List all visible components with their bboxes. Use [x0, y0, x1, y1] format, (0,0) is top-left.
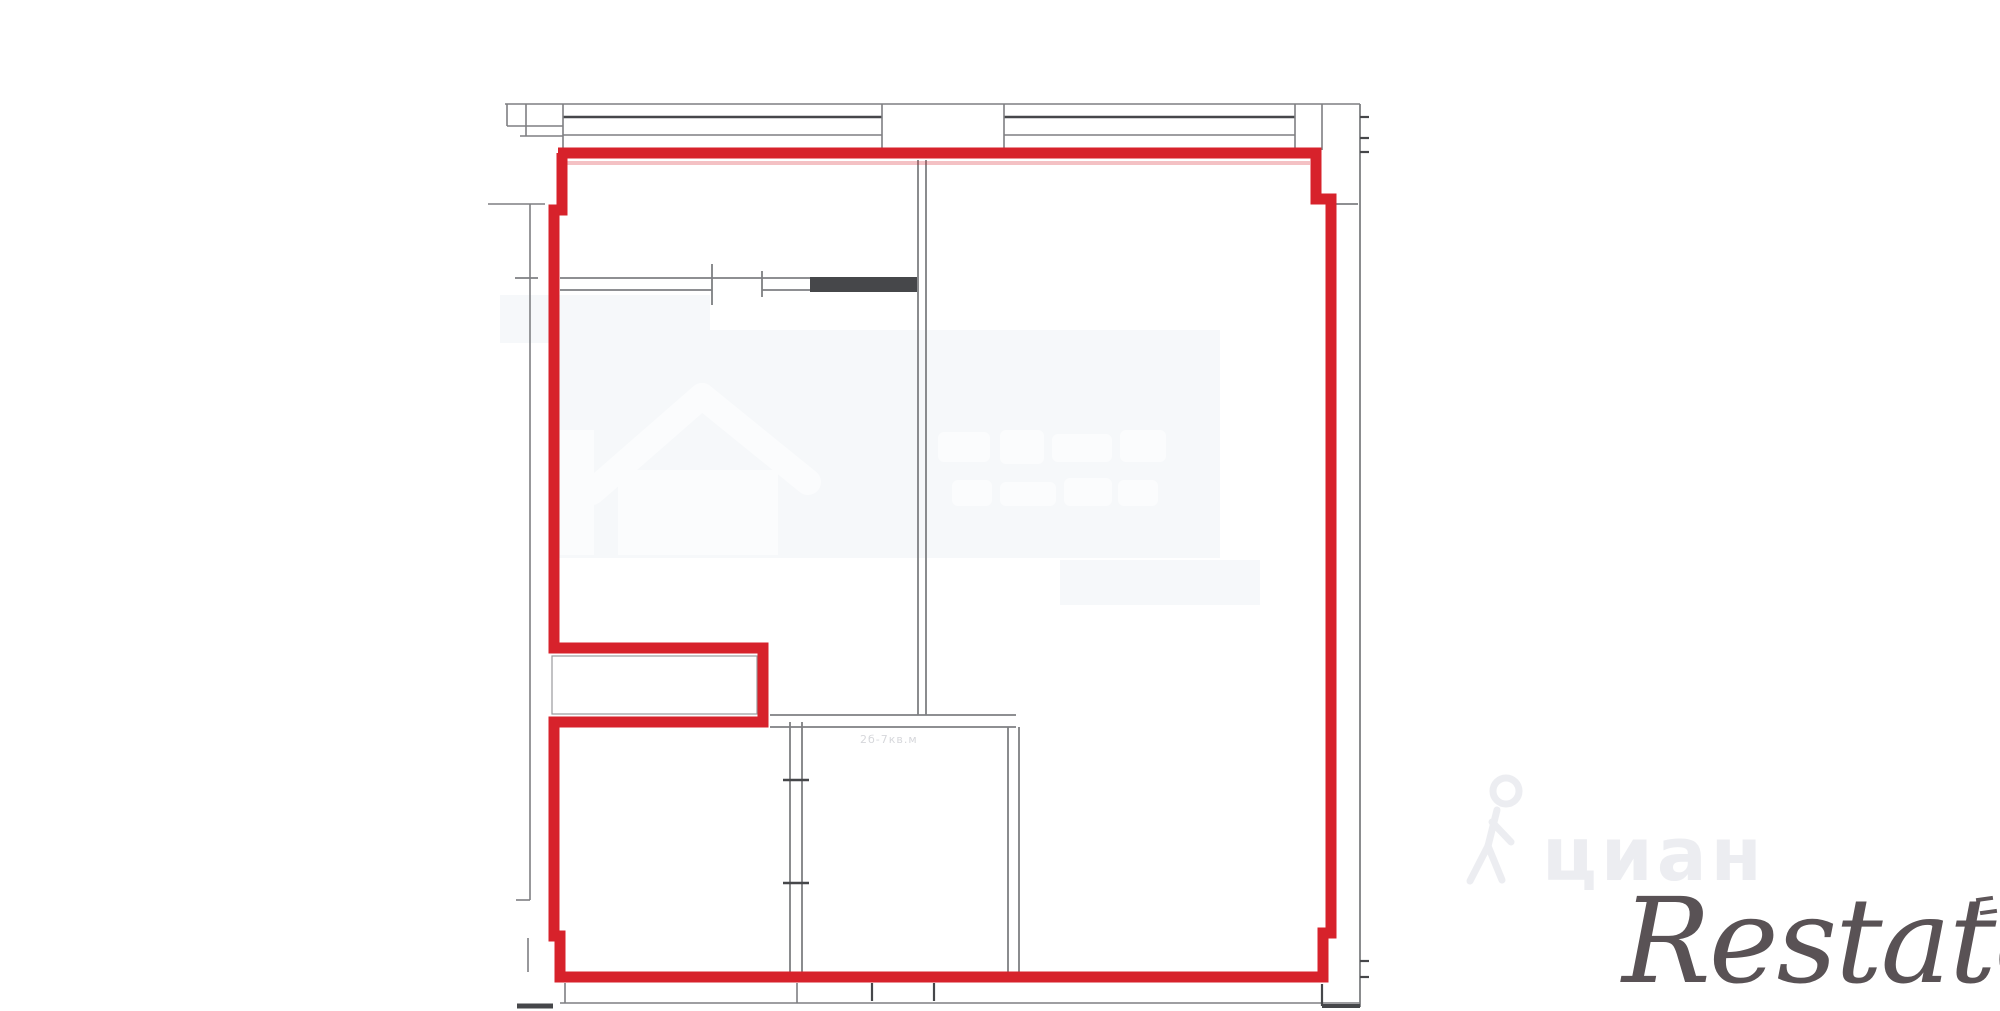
- watermark-background-patch: [1060, 560, 1260, 605]
- watermark-text-ghost: [938, 432, 990, 462]
- cian-person-icon: [1493, 778, 1519, 804]
- floorplan-canvas: 2б-7кв.м циан Restate: [0, 0, 2000, 1011]
- watermark-text-ghost: [1000, 430, 1044, 464]
- cian-person-icon: [1470, 846, 1488, 881]
- house-icon: [560, 430, 594, 555]
- room-area-label: 2б-7кв.м: [860, 733, 918, 745]
- wall-solid-segment: [810, 277, 917, 292]
- watermark-text-ghost: [1000, 482, 1056, 506]
- watermark-background-patch: [500, 295, 710, 343]
- house-icon: [618, 470, 778, 555]
- cian-person-icon: [1488, 846, 1502, 880]
- watermark-text-ghost: [1052, 434, 1112, 462]
- watermark-text-ghost: [1118, 480, 1158, 506]
- watermark-text-ghost: [1064, 478, 1112, 506]
- restate-watermark-text: Restate: [1622, 872, 2000, 1010]
- notch-inner-outline: [552, 656, 757, 714]
- watermark-text-ghost: [952, 480, 992, 506]
- watermark-text-ghost: [1120, 430, 1166, 462]
